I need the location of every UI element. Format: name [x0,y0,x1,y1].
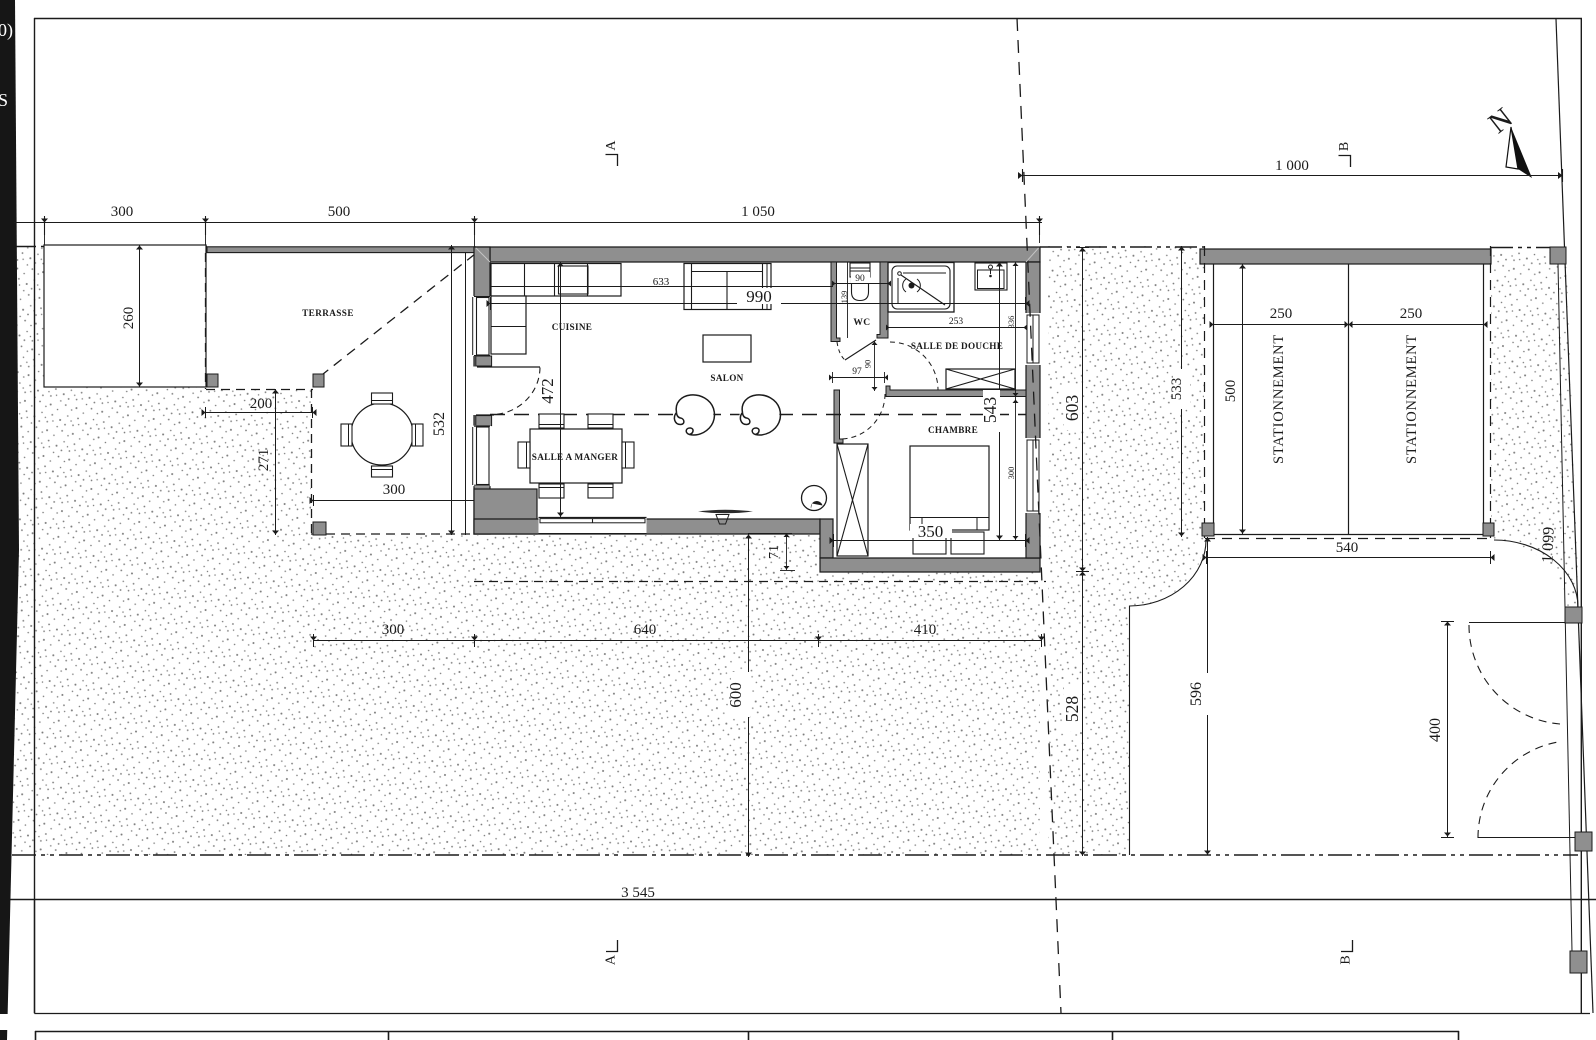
svg-text:540: 540 [1336,540,1359,556]
svg-text:STATIONNEMENT: STATIONNEMENT [1404,334,1420,464]
svg-text:71: 71 [767,545,782,559]
svg-text:1 050: 1 050 [741,204,775,220]
svg-text:3 545: 3 545 [621,885,655,901]
svg-text:596: 596 [1188,682,1205,706]
svg-text:400: 400 [1427,718,1444,742]
svg-text:300: 300 [111,204,134,220]
svg-text:B: B [1339,955,1354,964]
svg-text:A: A [604,140,619,151]
svg-text:633: 633 [653,276,670,288]
svg-text:253: 253 [949,317,964,327]
svg-text:500: 500 [1223,380,1239,403]
svg-text:543: 543 [980,397,1000,424]
svg-text:SALLE DE DOUCHE: SALLE DE DOUCHE [911,341,1003,351]
svg-text:WC: WC [853,318,870,328]
svg-text:90: 90 [855,274,865,284]
svg-text:1 099: 1 099 [1539,527,1557,564]
svg-text:250: 250 [1270,306,1293,322]
svg-text:250: 250 [1400,306,1423,322]
svg-text:271: 271 [256,449,272,472]
svg-text:1 000: 1 000 [1275,158,1309,174]
svg-text:200: 200 [250,396,273,412]
svg-text:139: 139 [839,291,849,304]
svg-text:B: B [1337,142,1352,151]
svg-text:336: 336 [1006,316,1016,329]
svg-text:300: 300 [1006,467,1016,480]
svg-text:350: 350 [918,522,944,541]
svg-text:S: S [0,90,8,110]
svg-text:472: 472 [538,378,557,404]
svg-text:CUISINE: CUISINE [552,322,592,332]
svg-text:990: 990 [746,287,772,306]
svg-text:533: 533 [1169,378,1185,401]
svg-text:STATIONNEMENT: STATIONNEMENT [1271,334,1287,464]
svg-text:SALON: SALON [710,373,743,383]
svg-text:532: 532 [431,412,448,436]
svg-text:97: 97 [852,367,862,377]
svg-text:500: 500 [328,204,351,220]
svg-text:CHAMBRE: CHAMBRE [928,425,978,435]
svg-text:TERRASSE: TERRASSE [302,308,354,318]
svg-text:0): 0) [0,20,13,41]
svg-text:90: 90 [863,360,873,369]
svg-text:300: 300 [383,482,406,498]
svg-text:640: 640 [634,622,657,638]
svg-text:410: 410 [914,622,937,638]
svg-text:SALLE A MANGER: SALLE A MANGER [532,452,618,462]
svg-text:260: 260 [121,307,137,330]
svg-text:528: 528 [1062,696,1082,723]
svg-text:600: 600 [726,682,745,708]
svg-text:A: A [604,954,619,965]
svg-text:300: 300 [382,622,405,638]
svg-text:603: 603 [1062,395,1082,422]
